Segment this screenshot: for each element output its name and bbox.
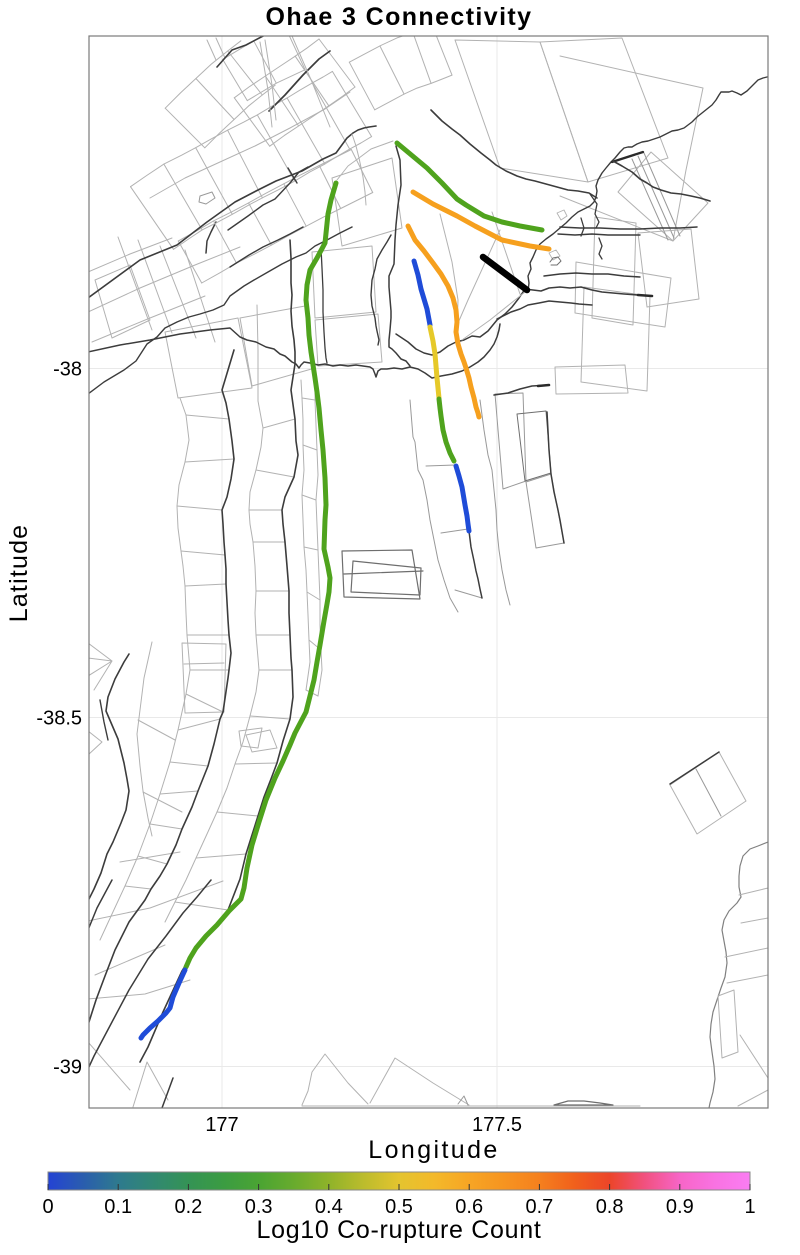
- svg-text:0.5: 0.5: [385, 1196, 413, 1218]
- svg-text:0: 0: [42, 1196, 53, 1218]
- svg-text:Latitude: Latitude: [5, 524, 33, 623]
- svg-text:0.1: 0.1: [104, 1196, 132, 1218]
- svg-text:-39: -39: [53, 1057, 82, 1079]
- svg-text:0.6: 0.6: [455, 1196, 483, 1218]
- svg-text:-38.5: -38.5: [36, 708, 82, 730]
- svg-text:177: 177: [205, 1114, 238, 1136]
- svg-text:Longitude: Longitude: [368, 1136, 499, 1164]
- svg-text:177.5: 177.5: [472, 1114, 522, 1136]
- svg-text:0.4: 0.4: [315, 1196, 343, 1218]
- svg-text:-38: -38: [53, 359, 82, 381]
- svg-text:0.9: 0.9: [666, 1196, 694, 1218]
- svg-text:0.7: 0.7: [525, 1196, 553, 1218]
- svg-text:0.8: 0.8: [596, 1196, 624, 1218]
- svg-text:Ohae 3 Connectivity: Ohae 3 Connectivity: [266, 3, 533, 31]
- svg-text:0.3: 0.3: [245, 1196, 273, 1218]
- svg-text:Log10 Co-rupture Count: Log10 Co-rupture Count: [256, 1216, 541, 1244]
- svg-text:0.2: 0.2: [174, 1196, 202, 1218]
- svg-text:1: 1: [744, 1196, 755, 1218]
